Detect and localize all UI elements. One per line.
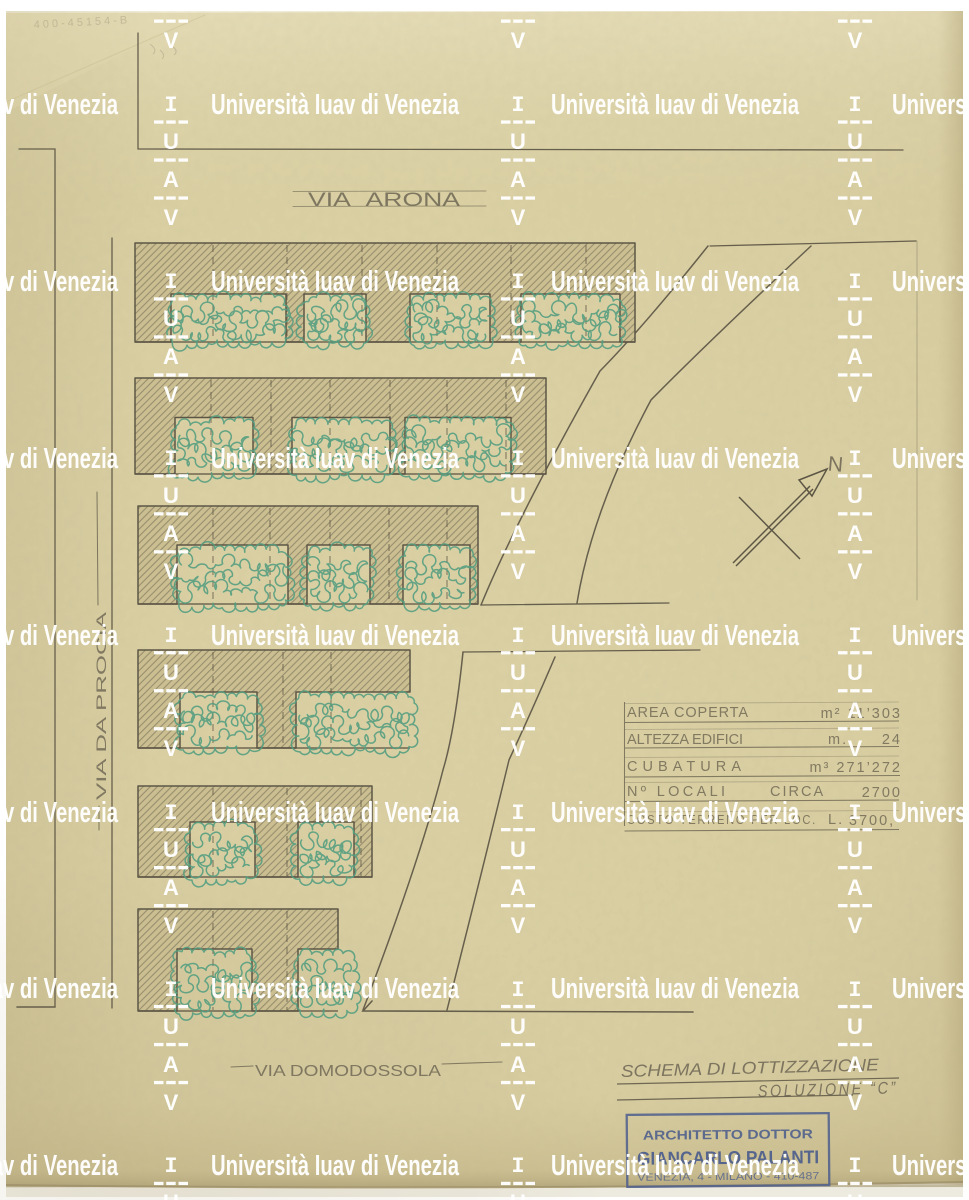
svg-text:I: I: [848, 801, 861, 826]
svg-text:V: V: [511, 28, 526, 53]
svg-text:U: U: [163, 1014, 179, 1039]
svg-text:V: V: [164, 736, 179, 761]
svg-text:V: V: [511, 205, 526, 230]
svg-text:V: V: [511, 1090, 526, 1115]
svg-text:Università Iuav di Venezia: Università Iuav di Venezia: [551, 443, 800, 475]
svg-text:I: I: [511, 624, 524, 649]
svg-text:I: I: [848, 93, 861, 118]
svg-text:Università Iuav di Venezia: Università Iuav di Venezia: [0, 443, 119, 475]
svg-text:V: V: [848, 736, 863, 761]
svg-text:Università Iuav di Venezia: Università Iuav di Venezia: [0, 973, 119, 1005]
svg-text:U: U: [847, 1190, 863, 1200]
svg-text:Università Iuav di Venezia: Università Iuav di Venezia: [551, 266, 800, 298]
svg-text:U: U: [847, 837, 863, 862]
svg-text:V: V: [848, 559, 863, 584]
svg-text:Università Iuav di Venezia: Università Iuav di Venezia: [892, 620, 969, 652]
svg-text:A: A: [510, 167, 526, 192]
svg-text:U: U: [510, 660, 526, 685]
svg-text:Università Iuav di Venezia: Università Iuav di Venezia: [211, 443, 460, 475]
svg-text:U: U: [163, 129, 179, 154]
svg-text:U: U: [847, 1014, 863, 1039]
svg-text:I: I: [511, 801, 524, 826]
svg-text:Università Iuav di Venezia: Università Iuav di Venezia: [892, 443, 969, 475]
svg-text:AREA COPERTA: AREA COPERTA: [627, 705, 750, 721]
svg-text:A: A: [510, 344, 526, 369]
svg-text:Università Iuav di Venezia: Università Iuav di Venezia: [0, 620, 119, 652]
svg-text:U: U: [510, 306, 526, 331]
svg-text:VIA DOMODOSSOLA: VIA DOMODOSSOLA: [255, 1063, 442, 1080]
svg-text:I: I: [848, 978, 861, 1003]
svg-text:V: V: [511, 736, 526, 761]
svg-text:A: A: [163, 1052, 179, 1077]
svg-text:Università Iuav di Venezia: Università Iuav di Venezia: [551, 620, 800, 652]
svg-text:I: I: [164, 978, 177, 1003]
svg-text:U: U: [510, 837, 526, 862]
svg-text:m.: m.: [828, 732, 848, 748]
svg-text:I: I: [848, 624, 861, 649]
svg-text:A: A: [510, 1052, 526, 1077]
svg-text:Università Iuav di Venezia: Università Iuav di Venezia: [892, 89, 969, 121]
svg-text:A: A: [510, 0, 526, 15]
svg-text:V: V: [164, 913, 179, 938]
svg-text:I: I: [164, 801, 177, 826]
svg-text:U: U: [847, 483, 863, 508]
svg-text:A: A: [163, 875, 179, 900]
svg-text:L.: L.: [828, 812, 844, 828]
svg-text:A: A: [847, 875, 863, 900]
svg-text:A: A: [847, 344, 863, 369]
svg-text:V: V: [848, 28, 863, 53]
svg-text:I: I: [164, 1154, 177, 1179]
svg-text:m³ 271’272: m³ 271’272: [809, 760, 902, 776]
svg-text:A: A: [510, 698, 526, 723]
svg-text:A: A: [163, 344, 179, 369]
svg-text:24: 24: [882, 732, 902, 748]
svg-text:SOLUZIONE “C”: SOLUZIONE “C”: [758, 1078, 898, 1101]
svg-text:U: U: [163, 1190, 179, 1200]
svg-text:V: V: [848, 1090, 863, 1115]
svg-text:V: V: [511, 559, 526, 584]
svg-text:I: I: [511, 93, 524, 118]
svg-text:VIA ARONA: VIA ARONA: [308, 190, 460, 211]
svg-text:U: U: [847, 660, 863, 685]
svg-text:U: U: [510, 129, 526, 154]
svg-text:U: U: [163, 660, 179, 685]
svg-text:A: A: [847, 0, 863, 15]
svg-text:Università Iuav di Venezia: Università Iuav di Venezia: [0, 797, 119, 829]
svg-text:Università Iuav di Venezia: Università Iuav di Venezia: [211, 266, 460, 298]
svg-text:V: V: [511, 382, 526, 407]
svg-text:Università Iuav di Venezia: Università Iuav di Venezia: [0, 1150, 119, 1182]
svg-text:I: I: [164, 447, 177, 472]
svg-text:ALTEZZA EDIFICI: ALTEZZA EDIFICI: [627, 732, 745, 748]
svg-text:I: I: [848, 270, 861, 295]
svg-text:A: A: [847, 521, 863, 546]
svg-text:U: U: [163, 306, 179, 331]
svg-text:Università Iuav di Venezia: Università Iuav di Venezia: [551, 89, 800, 121]
svg-text:A: A: [163, 698, 179, 723]
svg-text:Università Iuav di Venezia: Università Iuav di Venezia: [0, 266, 119, 298]
svg-text:U: U: [510, 483, 526, 508]
svg-text:I: I: [511, 270, 524, 295]
svg-text:V: V: [511, 913, 526, 938]
svg-text:V: V: [848, 382, 863, 407]
svg-text:A: A: [163, 0, 179, 15]
svg-text:I: I: [164, 624, 177, 649]
svg-text:I: I: [511, 978, 524, 1003]
svg-text:A: A: [847, 1052, 863, 1077]
svg-text:Università Iuav di Venezia: Università Iuav di Venezia: [892, 973, 969, 1005]
svg-text:U: U: [847, 306, 863, 331]
svg-text:Università Iuav di Venezia: Università Iuav di Venezia: [211, 1150, 460, 1182]
svg-text:I: I: [511, 447, 524, 472]
svg-text:Università Iuav di Venezia: Università Iuav di Venezia: [551, 1150, 800, 1182]
svg-text:V: V: [164, 1090, 179, 1115]
svg-text:V: V: [164, 382, 179, 407]
svg-text:A: A: [163, 167, 179, 192]
svg-text:N: N: [827, 453, 844, 477]
svg-text:I: I: [164, 93, 177, 118]
svg-text:A: A: [510, 875, 526, 900]
svg-text:A: A: [510, 521, 526, 546]
svg-text:Università Iuav di Venezia: Università Iuav di Venezia: [892, 266, 969, 298]
svg-text:A: A: [847, 167, 863, 192]
svg-text:I: I: [511, 1154, 524, 1179]
svg-text:A: A: [847, 698, 863, 723]
svg-text:U: U: [510, 1190, 526, 1200]
svg-text:Università Iuav di Venezia: Università Iuav di Venezia: [211, 973, 460, 1005]
svg-text:U: U: [510, 1014, 526, 1039]
svg-text:Università Iuav di Venezia: Università Iuav di Venezia: [211, 797, 460, 829]
svg-text:Università Iuav di Venezia: Università Iuav di Venezia: [211, 89, 460, 121]
svg-text:Università Iuav di Venezia: Università Iuav di Venezia: [892, 1150, 969, 1182]
svg-text:Università Iuav di Venezia: Università Iuav di Venezia: [211, 620, 460, 652]
svg-text:U: U: [163, 483, 179, 508]
svg-text:A: A: [163, 521, 179, 546]
svg-text:V: V: [164, 28, 179, 53]
svg-text:V: V: [848, 205, 863, 230]
svg-text:U: U: [847, 129, 863, 154]
svg-text:I: I: [164, 270, 177, 295]
svg-text:I: I: [848, 447, 861, 472]
svg-text:U: U: [163, 837, 179, 862]
svg-text:V: V: [164, 205, 179, 230]
svg-text:Università Iuav di Venezia: Università Iuav di Venezia: [892, 797, 969, 829]
svg-text:V: V: [164, 559, 179, 584]
svg-text:Università Iuav di Venezia: Università Iuav di Venezia: [0, 89, 119, 121]
svg-text:V: V: [848, 913, 863, 938]
svg-text:Università Iuav di Venezia: Università Iuav di Venezia: [551, 973, 800, 1005]
svg-text:ARCHITETTO DOTTOR: ARCHITETTO DOTTOR: [643, 1126, 814, 1142]
svg-text:I: I: [848, 1154, 861, 1179]
svg-text:Università Iuav di Venezia: Università Iuav di Venezia: [551, 797, 800, 829]
